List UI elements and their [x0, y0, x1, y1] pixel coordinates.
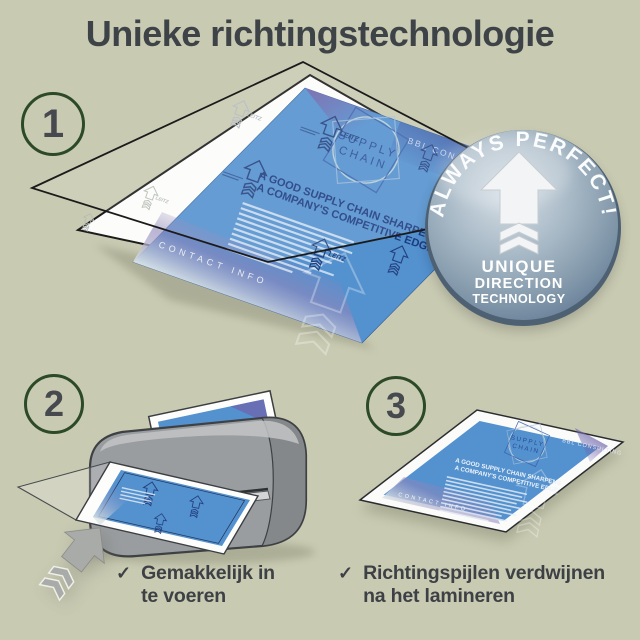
step-1-circle: 1 [21, 92, 85, 156]
caption-easy-feed-text: Gemakkelijk in te voeren [141, 562, 275, 608]
caption-line: te voeren [141, 585, 226, 607]
caption-line: Richtingspijlen verdwijnen [363, 562, 605, 584]
step-2-circle: 2 [24, 374, 84, 434]
badge-line3: TECHNOLOGY [472, 292, 565, 306]
checkmark-icon: ✓ [116, 562, 131, 585]
checkmark-icon: ✓ [338, 562, 353, 585]
badge-line2: DIRECTION [475, 276, 564, 292]
caption-arrows-disappear: ✓ Richtingspijlen verdwijnen na het lami… [338, 562, 605, 608]
caption-arrows-disappear-text: Richtingspijlen verdwijnen na het lamine… [363, 562, 605, 608]
step-1-number: 1 [42, 102, 64, 147]
illustration: LEITZ LEITZ BBL CONSULTING CONTACT INFO [0, 0, 640, 640]
caption-line: Gemakkelijk in [141, 562, 275, 584]
caption-line: na het lamineren [363, 585, 515, 607]
step-3-number: 3 [386, 385, 406, 427]
badge-line1: UNIQUE [481, 257, 556, 276]
step-2-number: 2 [44, 383, 64, 425]
product-infographic: Unieke richtingstechnologie [0, 0, 640, 640]
step-3-circle: 3 [366, 376, 426, 436]
caption-easy-feed: ✓ Gemakkelijk in te voeren [116, 562, 275, 608]
always-perfect-badge: ALWAYS PERFECT! UNIQUE DIRECTION TECHNOL… [425, 128, 621, 331]
